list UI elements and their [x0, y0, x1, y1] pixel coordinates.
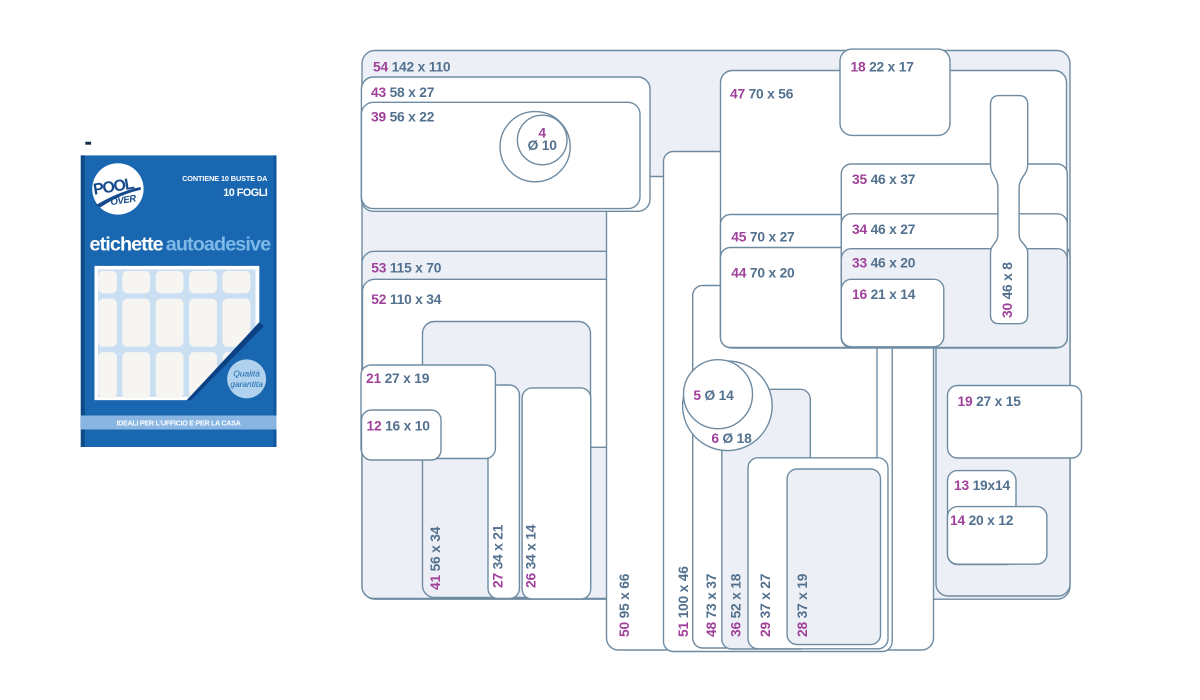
svg-text:Qualità: Qualità	[233, 369, 260, 379]
svg-text:33 46 x 20: 33 46 x 20	[852, 256, 916, 271]
svg-text:48 73 x 37: 48 73 x 37	[704, 573, 719, 637]
svg-text:5 Ø 14: 5 Ø 14	[693, 388, 734, 403]
svg-text:IDEALI PER L’UFFICIO E PER LA: IDEALI PER L’UFFICIO E PER LA CASA	[116, 419, 240, 428]
svg-text:16 21 x 14: 16 21 x 14	[852, 287, 916, 302]
svg-text:26 34 x 14: 26 34 x 14	[524, 524, 539, 588]
svg-text:50 95 x 66: 50 95 x 66	[617, 573, 632, 637]
svg-text:30 46 x 8: 30 46 x 8	[1000, 262, 1015, 318]
svg-text:28 37 x 19: 28 37 x 19	[795, 573, 810, 637]
svg-text:12 16 x 10: 12 16 x 10	[367, 419, 431, 434]
svg-text:35 46 x 37: 35 46 x 37	[852, 172, 916, 187]
svg-text:18 22 x 17: 18 22 x 17	[851, 60, 915, 75]
svg-text:51 100 x 46: 51 100 x 46	[676, 566, 691, 637]
svg-text:53 115 x 70: 53 115 x 70	[371, 261, 441, 276]
svg-text:10 FOGLI: 10 FOGLI	[223, 187, 267, 199]
svg-text:29 37 x 27: 29 37 x 27	[758, 573, 773, 637]
svg-text:54 142 x 110: 54 142 x 110	[373, 60, 451, 75]
svg-text:CONTIENE 10 BUSTE DA: CONTIENE 10 BUSTE DA	[182, 174, 268, 183]
svg-text:13 19x14: 13 19x14	[954, 478, 1010, 493]
svg-text:45 70 x 27: 45 70 x 27	[731, 229, 795, 244]
svg-text:47 70 x 56: 47 70 x 56	[730, 87, 794, 102]
svg-text:27 34 x 21: 27 34 x 21	[491, 524, 506, 588]
svg-text:6 Ø 18: 6 Ø 18	[711, 431, 752, 446]
svg-text:19 27 x 15: 19 27 x 15	[958, 394, 1022, 409]
svg-text:21 27 x 19: 21 27 x 19	[366, 371, 430, 386]
svg-text:14 20 x 12: 14 20 x 12	[950, 513, 1014, 528]
svg-text:44 70 x 20: 44 70 x 20	[731, 266, 795, 281]
svg-text:43 58 x 27: 43 58 x 27	[371, 85, 435, 100]
svg-text:34 46 x 27: 34 46 x 27	[852, 222, 916, 237]
svg-text:41 56 x 34: 41 56 x 34	[428, 526, 443, 590]
svg-text:36 52 x 18: 36 52 x 18	[729, 573, 744, 637]
svg-text:Ø 10: Ø 10	[528, 138, 558, 153]
svg-text:52 110 x 34: 52 110 x 34	[371, 292, 441, 307]
svg-text:etichetteautoadesive: etichetteautoadesive	[90, 234, 272, 256]
svg-text:garantita: garantita	[230, 379, 263, 389]
svg-text:39 56 x 22: 39 56 x 22	[371, 110, 435, 125]
